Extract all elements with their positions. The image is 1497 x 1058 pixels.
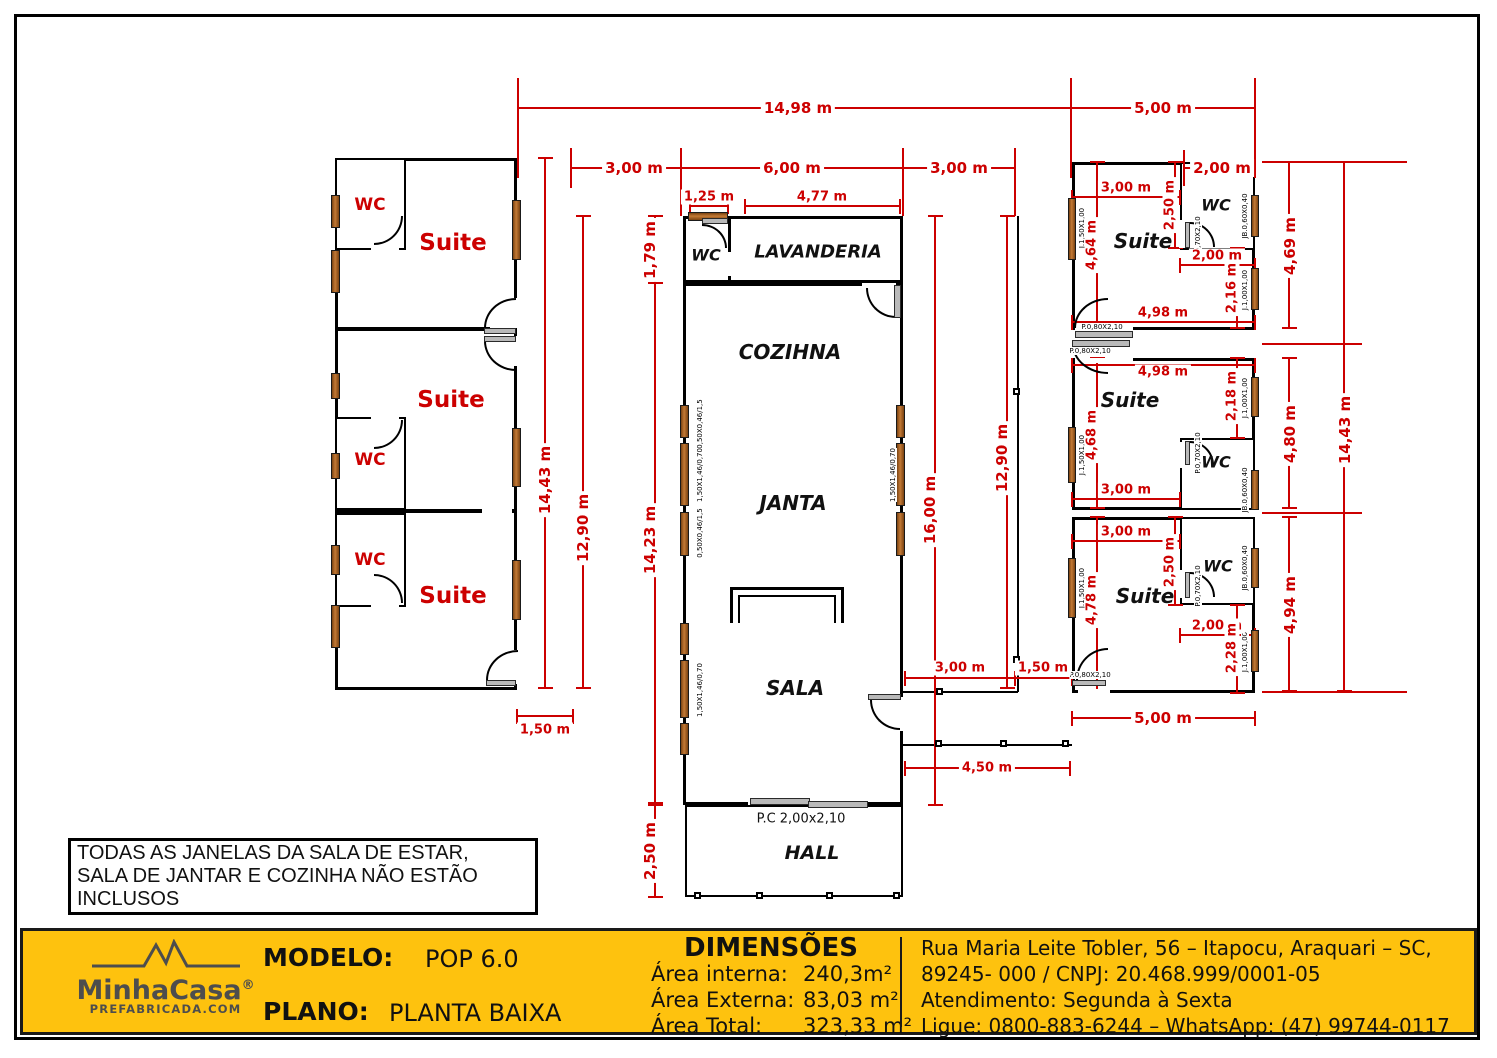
window xyxy=(512,200,521,260)
room-label-hall: HALL xyxy=(785,842,840,864)
window xyxy=(512,560,521,620)
walkway-edge xyxy=(1017,216,1019,692)
dimension-label: 2,18 m xyxy=(1225,368,1240,424)
dimension-label: 12,90 m xyxy=(574,491,592,565)
areas-table: Área interna: 240,3m² Área Externa: 83,0… xyxy=(651,961,912,1039)
area-value: 323,33 m² xyxy=(803,1013,912,1039)
post xyxy=(893,892,900,899)
door-opening xyxy=(371,604,399,608)
dimension-label: 14,43 m xyxy=(536,443,554,517)
door-opening xyxy=(482,509,512,513)
logo-name: MinhaCasa® xyxy=(63,975,268,1002)
room-label-lavanderia: LAVANDERIA xyxy=(754,242,882,263)
dimension-label: 14,43 m xyxy=(1336,393,1354,467)
modelo-label: MODELO: xyxy=(263,943,393,972)
logo-subtitle: PREFABRICADA.COM xyxy=(63,1002,268,1016)
door-opening xyxy=(371,246,399,250)
door-leaf xyxy=(1185,222,1190,248)
dimension-label: 5,00 m xyxy=(1131,709,1195,727)
post xyxy=(1000,740,1007,747)
dimension-tick xyxy=(1262,343,1362,345)
wall xyxy=(335,327,490,331)
company-logo: MinhaCasa® PREFABRICADA.COM xyxy=(63,939,268,1016)
room-label-wc: WC xyxy=(354,450,385,470)
window xyxy=(1251,630,1259,672)
window xyxy=(331,195,340,228)
dimension-line xyxy=(745,205,900,207)
main-door-label: P.C 2,00x2,10 xyxy=(757,812,846,827)
dimension-line xyxy=(1072,498,1180,500)
dimension-label: 3,00 m xyxy=(1098,525,1154,540)
room-label-janta: JANTA xyxy=(759,491,826,515)
door-leaf xyxy=(894,285,901,318)
title-block: MinhaCasa® PREFABRICADA.COM MODELO: POP … xyxy=(20,928,1477,1035)
dimension-label: 16,00 m xyxy=(921,473,939,547)
area-label: Área interna: xyxy=(651,961,803,987)
door-leaf xyxy=(1072,340,1130,347)
dimension-line xyxy=(582,216,584,688)
area-row: Área Total: 323,33 m² xyxy=(651,1013,912,1039)
room-label-wc: WC xyxy=(354,195,385,215)
area-row: Área Externa: 83,03 m² xyxy=(651,987,912,1013)
post xyxy=(756,892,763,899)
room-label-suite: Suite xyxy=(1101,388,1160,412)
window-tag: J.1,00X1,00 xyxy=(1241,632,1249,672)
window xyxy=(680,443,689,506)
note-line: TODAS AS JANELAS DA SALA DE ESTAR, xyxy=(77,842,529,865)
dimension-label: 1,50 m xyxy=(1015,661,1071,676)
window xyxy=(331,453,340,479)
dimension-label: 4,77 m xyxy=(794,190,850,205)
dimension-label: 2,16 m xyxy=(1225,260,1240,316)
room-label-sala: SALA xyxy=(766,676,824,700)
contact-line: 89245- 000 / CNPJ: 20.468.999/0001-05 xyxy=(921,961,1450,987)
dimension-label: 2,50 m xyxy=(1163,177,1178,233)
window xyxy=(331,250,340,293)
door-tag: P.0,70X2,10 xyxy=(1194,565,1202,606)
dimension-tick xyxy=(680,148,682,216)
window xyxy=(1251,548,1259,588)
contact-line: Rua Maria Leite Tobler, 56 – Itapocu, Ar… xyxy=(921,935,1450,961)
note-line: SALA DE JANTAR E COZINHA NÃO ESTÃO INCLU… xyxy=(77,865,529,911)
room-label-wc: WC xyxy=(1201,453,1230,472)
room-label-wc: WC xyxy=(1201,196,1230,215)
dimension-label: 4,68 m xyxy=(1085,407,1100,463)
area-value: 240,3m² xyxy=(803,961,892,987)
area-label: Área Total: xyxy=(651,1013,803,1039)
contact-block: Rua Maria Leite Tobler, 56 – Itapocu, Ar… xyxy=(921,935,1450,1039)
window-tag: 0,50X0,46/1,5 xyxy=(696,508,704,557)
room-label-suite: Suite xyxy=(419,583,486,609)
dimension-label: 2,50 m xyxy=(641,819,659,883)
door-leaf xyxy=(484,328,516,334)
dimension-label: 3,00 m xyxy=(1098,181,1154,196)
post xyxy=(1013,388,1020,395)
window xyxy=(1251,268,1259,310)
dimension-label: 5,00 m xyxy=(1131,99,1195,117)
dimension-label: 3,00 m xyxy=(602,159,666,177)
area-label: Área Externa: xyxy=(651,987,803,1013)
dimension-label: 1,50 m xyxy=(517,723,573,738)
dimension-label: 4,50 m xyxy=(959,761,1015,776)
dimension-line xyxy=(517,715,573,717)
area-row: Área interna: 240,3m² xyxy=(651,961,912,987)
door-leaf xyxy=(868,694,901,700)
dimension-label: 6,00 m xyxy=(760,159,824,177)
walkway-edge xyxy=(903,744,1072,746)
note-box: TODAS AS JANELAS DA SALA DE ESTAR, SALA … xyxy=(68,838,538,915)
dimension-label: 14,98 m xyxy=(761,99,835,117)
door-tag: P.0,80X2,10 xyxy=(1069,347,1110,355)
dimension-label: 3,00 m xyxy=(927,159,991,177)
contact-line: Atendimento: Segunda à Sexta xyxy=(921,987,1450,1013)
dimension-label: 4,69 m xyxy=(1281,214,1299,278)
door-leaf xyxy=(1185,572,1190,598)
dimension-label: 4,98 m xyxy=(1135,365,1191,380)
counter-outline xyxy=(738,595,836,623)
door-opening xyxy=(1179,570,1183,598)
door-opening xyxy=(1179,442,1183,468)
window xyxy=(1251,195,1259,237)
dimension-line xyxy=(905,677,1015,679)
plano-label: PLANO: xyxy=(263,997,369,1026)
dimension-label: 3,00 m xyxy=(932,661,988,676)
door-leaf xyxy=(702,218,728,224)
window xyxy=(896,443,905,506)
door-opening xyxy=(1078,689,1110,693)
post xyxy=(936,688,943,695)
sliding-door-leaf xyxy=(808,801,868,808)
window xyxy=(331,605,340,648)
dimension-line xyxy=(1015,677,1072,679)
window-tag: JB.0,60X0,40 xyxy=(1241,193,1249,238)
window xyxy=(1068,198,1076,260)
dimension-tick xyxy=(517,78,519,178)
post xyxy=(694,892,701,899)
window xyxy=(1068,427,1076,483)
post xyxy=(935,740,942,747)
window xyxy=(1251,377,1259,417)
dimension-label: 2,50 m xyxy=(1163,534,1178,590)
footer-divider xyxy=(900,937,902,1027)
room-label-cozinha: COZIHNA xyxy=(739,340,842,364)
window-tag: 0,50X0,46/1,5 xyxy=(696,399,704,448)
door-tag: P.0,80X2,10 xyxy=(1081,323,1122,331)
dimension-tick xyxy=(1070,78,1072,178)
window-tag: J.1,00X1,00 xyxy=(1241,270,1249,310)
mountains-icon xyxy=(86,939,246,971)
window-tag: 1,50X1,46/0,70 xyxy=(696,663,704,717)
window-tag: JB.0,60X0,40 xyxy=(1241,545,1249,590)
modelo-value: POP 6.0 xyxy=(425,945,519,973)
window-tag: 1,50X1,46/0,70 xyxy=(696,448,704,502)
window xyxy=(680,512,689,556)
post xyxy=(1062,740,1069,747)
dimension-label: 4,64 m xyxy=(1085,217,1100,273)
window xyxy=(331,373,340,399)
dimension-label: 3,00 m xyxy=(1098,483,1154,498)
dimension-line xyxy=(690,205,728,207)
dimension-label: 12,90 m xyxy=(993,421,1011,495)
room-label-wc: WC xyxy=(691,246,720,265)
door-leaf xyxy=(1075,331,1133,338)
window xyxy=(680,660,689,718)
window xyxy=(680,723,689,755)
door-opening xyxy=(1179,220,1183,248)
dimension-label: 1,79 m xyxy=(641,218,659,282)
sliding-door-leaf xyxy=(750,798,810,805)
door-leaf xyxy=(486,680,516,686)
window-tag: JB.0,60X0,40 xyxy=(1241,467,1249,512)
dimensoes-title: DIMENSÕES xyxy=(651,933,891,963)
dimension-tick xyxy=(1014,148,1016,216)
door-opening xyxy=(728,252,731,276)
door-leaf xyxy=(1185,441,1190,465)
room-label-suite: Suite xyxy=(419,230,486,256)
dimension-label: 1,25 m xyxy=(681,190,737,205)
floor-plan-sheet: Suite Suite Suite WC WC WC 1,50X1,46/0,7… xyxy=(0,0,1497,1058)
room-label-suite: Suite xyxy=(417,387,484,413)
room-label-wc: WC xyxy=(1203,557,1232,576)
window-tag: J.1,00X1,00 xyxy=(1241,378,1249,418)
window xyxy=(1251,470,1259,510)
door-leaf xyxy=(484,336,516,342)
plano-value: PLANTA BAIXA xyxy=(389,999,561,1027)
window xyxy=(680,623,689,655)
dimension-label: 4,94 m xyxy=(1281,573,1299,637)
door-leaf xyxy=(1072,680,1106,686)
window xyxy=(1068,558,1076,618)
dimension-line xyxy=(1180,264,1255,266)
walkway-edge xyxy=(903,691,1018,693)
door-tag: P.0,80X2,10 xyxy=(1069,671,1110,679)
window-tag: 1,50X1,46/0,70 xyxy=(889,448,897,502)
area-value: 83,03 m² xyxy=(803,987,899,1013)
window xyxy=(896,405,905,438)
room-label-wc: WC xyxy=(354,550,385,570)
door-opening xyxy=(862,283,896,287)
dimension-label: 4,78 m xyxy=(1085,572,1100,628)
dimension-label: 4,80 m xyxy=(1281,402,1299,466)
post xyxy=(826,892,833,899)
window xyxy=(512,428,521,487)
dimension-label: 4,98 m xyxy=(1135,306,1191,321)
contact-line: Ligue: 0800-883-6244 – WhatsApp: (47) 99… xyxy=(921,1013,1450,1039)
dimension-label: 2,28 m xyxy=(1225,620,1240,676)
dimension-label: 2,00 m xyxy=(1190,159,1254,177)
dimension-label: 14,23 m xyxy=(641,503,659,577)
dimension-tick xyxy=(1262,512,1362,514)
window xyxy=(680,405,689,438)
window xyxy=(331,545,340,575)
dimension-line xyxy=(544,158,546,688)
dimension-tick xyxy=(902,148,904,216)
window xyxy=(896,512,905,556)
